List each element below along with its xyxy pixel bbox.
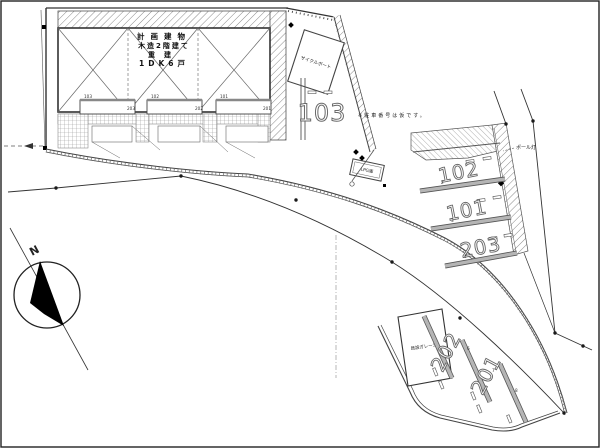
ground-block bbox=[203, 114, 217, 142]
entry-steps bbox=[92, 126, 268, 142]
building-note-line3: 重建 bbox=[148, 50, 180, 59]
point-number: 7 bbox=[492, 368, 495, 373]
stall-number-103: 103 bbox=[298, 99, 347, 127]
point-number: 3 bbox=[451, 218, 454, 223]
building-note-line1: 計画建物 bbox=[137, 31, 191, 41]
pole-light-label: ポール灯 bbox=[516, 144, 536, 151]
wheel-stop bbox=[308, 91, 316, 94]
building-note-line4: 1DK6戸 bbox=[139, 59, 189, 68]
unit-number: 103 bbox=[84, 94, 92, 99]
building-right-hatch-band bbox=[270, 11, 286, 140]
building-note-line2: 木造2階建て bbox=[137, 41, 190, 50]
unit-number: 101 bbox=[220, 94, 228, 99]
point-number: 2 bbox=[441, 180, 444, 185]
planned-building: 計画建物 木造2階建て 重建 1DK6戸 bbox=[41, 8, 288, 158]
point-number: 6 bbox=[467, 346, 470, 351]
point-number: 4 bbox=[464, 254, 467, 259]
ground-block bbox=[136, 114, 149, 142]
point-number: 8 bbox=[515, 388, 518, 393]
unit-number: 102 bbox=[151, 94, 159, 99]
unit-number: 201 bbox=[263, 106, 271, 111]
marker-square bbox=[383, 184, 386, 187]
site-plan-drawing: 計画建物 木造2階建て 重建 1DK6戸 bbox=[0, 0, 600, 448]
ground-block bbox=[58, 114, 88, 148]
building-top-hatch-band bbox=[58, 11, 286, 28]
unit-number: 202 bbox=[195, 106, 203, 111]
ground-strip bbox=[58, 114, 270, 124]
unit-number: 203 bbox=[127, 106, 135, 111]
site-plan-sheet: 計画建物 木造2階建て 重建 1DK6戸 bbox=[0, 0, 600, 448]
note-text: ※駐車番号は仮です。 bbox=[358, 112, 427, 119]
boundary-marker-square bbox=[42, 25, 46, 29]
entrance-porches bbox=[80, 100, 271, 114]
wheel-stop bbox=[324, 91, 332, 94]
